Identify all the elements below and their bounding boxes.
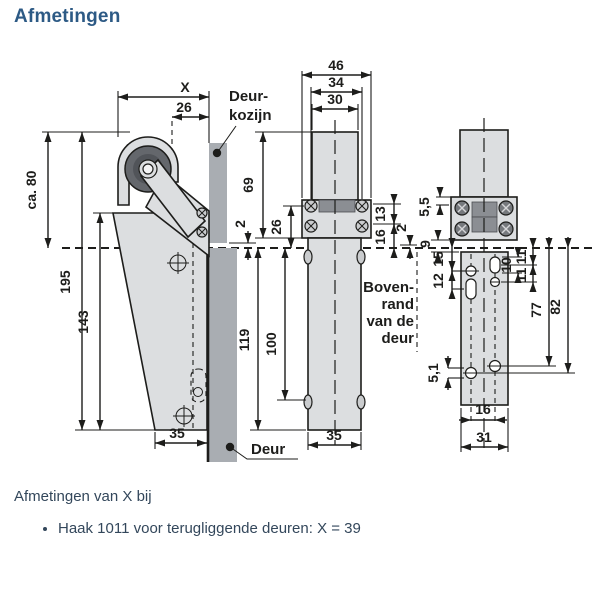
door-top-label: Boven- rand van de deur — [363, 252, 417, 352]
dim-13: 13 — [372, 206, 388, 222]
dim-34: 34 — [328, 74, 344, 90]
page: Afmetingen — [0, 0, 601, 606]
footer-heading: Afmetingen van X bij — [14, 488, 574, 505]
dim-16-right: 16 — [475, 401, 491, 417]
dim-11b: 11 — [513, 267, 529, 282]
dim-2-mid: 2 — [393, 224, 409, 232]
door-bar — [207, 248, 237, 462]
frame-label-line2: kozijn — [229, 107, 272, 124]
dim-119: 119 — [236, 328, 252, 351]
dim-82: 82 — [547, 299, 563, 315]
bovenrand-line1: Boven- — [363, 279, 414, 296]
dim-35-left: 35 — [169, 425, 185, 441]
dim-5-5: 5,5 — [416, 197, 432, 217]
dim-12: 12 — [430, 273, 446, 289]
door-label: Deur — [251, 441, 285, 458]
bovenrand-line2: rand — [381, 296, 414, 313]
dim-15: 15 — [430, 251, 446, 267]
dim-143: 143 — [75, 310, 91, 334]
dim-16-mid: 16 — [372, 229, 388, 245]
dim-x: X — [180, 79, 190, 95]
dim-77: 77 — [528, 302, 544, 318]
bovenrand-line4: deur — [381, 330, 414, 347]
frame-label-line1: Deur- — [229, 88, 268, 105]
dim-11a: 11 — [513, 249, 529, 264]
plate-view-figure: 5,5 9 15 12 10 — [416, 118, 575, 452]
dim-46: 46 — [328, 57, 344, 73]
dim-5-1: 5,1 — [425, 363, 441, 383]
footer-list-item: Haak 1011 voor terugliggende deuren: X =… — [58, 519, 574, 539]
dim-195: 195 — [57, 270, 73, 294]
bovenrand-line3: van de — [366, 313, 414, 330]
dim-9: 9 — [417, 240, 433, 248]
dim-69: 69 — [240, 177, 256, 193]
footer-text: Afmetingen van X bij Haak 1011 voor teru… — [14, 488, 574, 539]
dim-ca80: ca. 80 — [23, 170, 39, 209]
dim-35-mid: 35 — [326, 427, 342, 443]
side-view-figure: Deur- kozijn Deur ca. 80 195 143 X — [23, 79, 298, 462]
dim-2-left: 2 — [232, 220, 248, 228]
dim-31: 31 — [476, 429, 492, 445]
dim-26-frame: 26 — [176, 99, 192, 115]
footer-list: Haak 1011 voor terugliggende deuren: X =… — [14, 519, 574, 539]
dim-100: 100 — [263, 332, 279, 356]
door-frame-bar — [209, 143, 227, 243]
dim-26-mid: 26 — [268, 219, 284, 235]
dim-30: 30 — [327, 91, 343, 107]
